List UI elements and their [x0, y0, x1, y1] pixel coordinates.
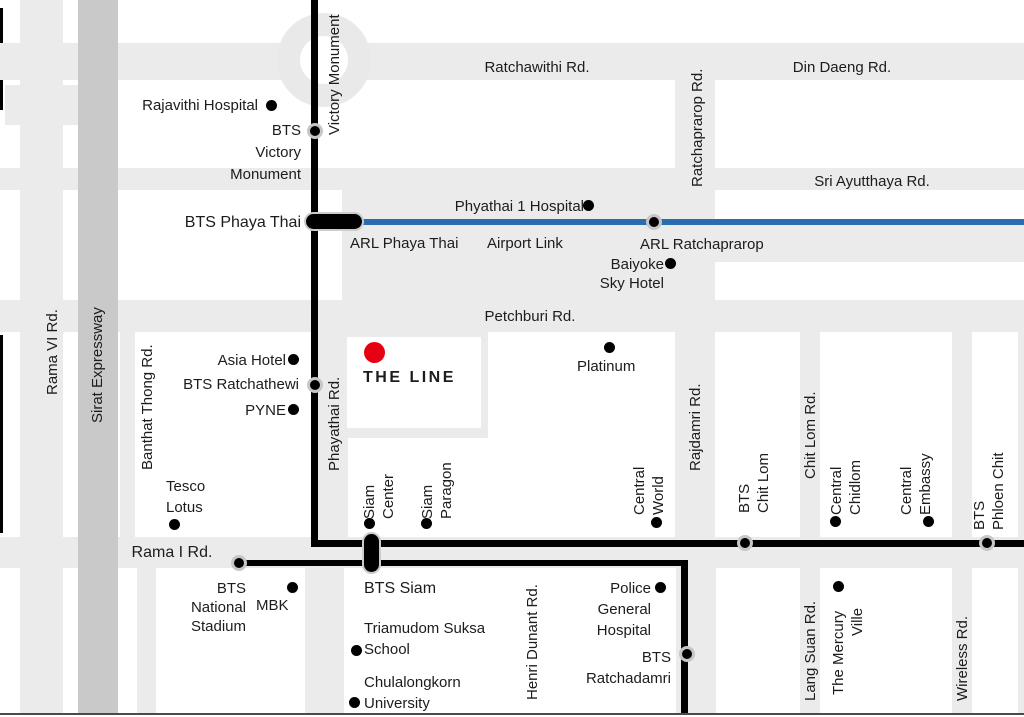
- poi-dot-central-chidlom: [830, 516, 841, 527]
- station-label-arl-phaya-thai: ARL Phaya Thai: [350, 234, 458, 253]
- poi-label-line: Triamudom Suksa: [364, 618, 485, 639]
- station-label-line: BTS: [191, 579, 246, 598]
- poi-label-rajavithi-hospital: Rajavithi Hospital: [142, 96, 258, 115]
- poi-label-police-general-hospital: Police General Hospital: [597, 578, 651, 641]
- poi-label-siam-paragon: Siam: [419, 487, 437, 519]
- poi-dot-police-general-hospital: [655, 582, 666, 593]
- poi-label-pyne: PYNE: [245, 401, 286, 420]
- road-band-right-edge: [1018, 300, 1024, 713]
- road-label-phayathai: Phayathai Rd.: [326, 371, 344, 471]
- road-band-banthat-south: [137, 568, 156, 713]
- poi-dot-mbk: [287, 582, 298, 593]
- road-label-rama6: Rama VI Rd.: [44, 305, 62, 395]
- poi-label-line: Sky Hotel: [600, 274, 664, 293]
- road-label-petchburi: Petchburi Rd.: [485, 307, 576, 326]
- station-pill-bts-phaya-thai: [304, 212, 364, 231]
- station-label-line: Ratchadamri: [586, 668, 671, 689]
- poi-label-line: School: [364, 639, 485, 660]
- poi-label-line: Baiyoke: [600, 255, 664, 274]
- poi-dot-platinum: [604, 342, 615, 353]
- station-label-bts-ratchadamri: BTS Ratchadamri: [586, 647, 671, 689]
- road-label-ratchaprarop: Ratchaprarop Rd.: [689, 57, 707, 187]
- poi-label-line: Lotus: [166, 497, 205, 518]
- station-marker-chit-lom: [737, 535, 753, 551]
- poi-label-mercury-ville: Ville: [849, 602, 867, 636]
- poi-dot-baiyoke-sky-hotel: [665, 258, 676, 269]
- road-label-sri-ayutthaya: Sri Ayutthaya Rd.: [814, 172, 930, 191]
- station-label-victory-monument: BTS Victory Monument: [230, 120, 301, 186]
- road-label-banthat-thong: Banthat Thong Rd.: [139, 330, 157, 470]
- station-marker-victory-monument: [307, 123, 323, 139]
- poi-label-mbk: MBK: [256, 596, 289, 615]
- bts-silom-line-vertical: [681, 560, 688, 714]
- road-label-victory-monument: Victory Monument: [326, 2, 344, 135]
- poi-label-central-embassy: Central: [898, 455, 916, 515]
- poi-dot-pyne: [288, 404, 299, 415]
- station-label-bts-phloen-chit: BTS: [971, 502, 989, 530]
- station-label-line: National: [191, 598, 246, 617]
- bts-sukhumvit-line-horizontal: [311, 540, 1024, 547]
- project-marker-the-line: [364, 342, 385, 363]
- station-marker-ratchathewi: [307, 377, 323, 393]
- bts-sukhumvit-line-vertical: [311, 0, 318, 547]
- poi-label-central-chidlom: Chidlom: [847, 457, 865, 515]
- poi-label-line: General: [597, 599, 651, 620]
- poi-label-line: Tesco: [166, 476, 205, 497]
- poi-label-line: Hospital: [597, 620, 651, 641]
- left-edge-road-line: [0, 8, 3, 43]
- poi-label-platinum: Platinum: [577, 357, 635, 376]
- station-label-bts-phaya-thai: BTS Phaya Thai: [185, 213, 301, 232]
- poi-label-central-world: Central: [631, 453, 649, 515]
- poi-label-baiyoke-sky-hotel: Baiyoke Sky Hotel: [600, 255, 664, 293]
- poi-dot-rajavithi-hospital: [266, 100, 277, 111]
- station-label-bts-national-stadium: BTS National Stadium: [191, 579, 246, 636]
- poi-dot-phyathai-1-hospital: [583, 200, 594, 211]
- station-label-line: Stadium: [191, 617, 246, 636]
- poi-label-central-world: World: [650, 467, 668, 515]
- poi-label-central-chidlom: Central: [828, 455, 846, 515]
- transit-location-map: Ratchawithi Rd. Din Daeng Rd. Sri Ayutth…: [0, 0, 1024, 717]
- poi-label-line: Police: [597, 578, 651, 599]
- poi-label-asia-hotel: Asia Hotel: [218, 351, 286, 370]
- poi-dot-siam-center: [364, 518, 375, 529]
- poi-label-line: University: [364, 693, 461, 714]
- bts-silom-line-horizontal: [238, 560, 688, 566]
- station-label-line: Monument: [230, 164, 301, 186]
- road-label-rama1: Rama I Rd.: [132, 543, 213, 562]
- road-label-rajdamri: Rajdamri Rd.: [687, 375, 705, 471]
- project-label-the-line: THE LINE: [363, 369, 456, 387]
- poi-label-triamudom-suksa-school: Triamudom Suksa School: [364, 618, 485, 660]
- poi-dot-central-world: [651, 517, 662, 528]
- road-label-langsuan: Lang Suan Rd.: [802, 585, 820, 701]
- road-label-wireless: Wireless Rd.: [954, 605, 972, 701]
- poi-label-mercury-ville: The Mercury: [830, 593, 848, 695]
- poi-dot-central-embassy: [923, 516, 934, 527]
- road-label-henri-dunant: Henri Dunant Rd.: [524, 572, 542, 700]
- arl-airport-link-line: [350, 219, 1024, 225]
- station-marker-arl-ratchaprarop: [646, 214, 662, 230]
- station-label-line: BTS: [230, 120, 301, 142]
- road-label-din-daeng: Din Daeng Rd.: [793, 58, 891, 77]
- station-label-bts-ratchathewi: BTS Ratchathewi: [183, 375, 299, 394]
- left-edge-road-line: [0, 335, 3, 533]
- road-band-banthat-north: [120, 300, 135, 537]
- road-label-chitlom: Chit Lom Rd.: [802, 375, 820, 479]
- station-label-arl-ratchaprarop: ARL Ratchaprarop: [640, 235, 764, 254]
- station-label-line: Victory: [230, 142, 301, 164]
- poi-dot-tesco-lotus: [169, 519, 180, 530]
- poi-dot-asia-hotel: [288, 354, 299, 365]
- label-airport-link: Airport Link: [487, 234, 563, 253]
- station-marker-phloen-chit: [979, 535, 995, 551]
- bottom-road-line: [0, 713, 1024, 715]
- station-label-bts-siam: BTS Siam: [364, 579, 436, 598]
- road-band-phayathai-south: [305, 568, 344, 713]
- station-label-line: BTS: [586, 647, 671, 668]
- poi-label-chulalongkorn-university: Chulalongkorn University: [364, 672, 461, 714]
- station-label-bts-phloen-chit: Phloen Chit: [990, 453, 1008, 530]
- station-marker-ratchadamri: [679, 646, 695, 662]
- poi-label-siam-center: Center: [380, 473, 398, 519]
- poi-dot-triamudom-suksa-school: [351, 645, 362, 656]
- station-label-bts-chit-lom: Chit Lom: [755, 452, 773, 513]
- poi-dot-mercury-ville: [833, 581, 844, 592]
- road-label-sirat-expressway: Sirat Expressway: [89, 298, 107, 423]
- poi-label-line: Chulalongkorn: [364, 672, 461, 693]
- poi-dot-chulalongkorn-university: [349, 697, 360, 708]
- poi-label-phyathai-1-hospital: Phyathai 1 Hospital: [455, 197, 584, 216]
- poi-label-tesco-lotus: Tesco Lotus: [166, 476, 205, 518]
- poi-label-siam-paragon: Paragon: [438, 460, 456, 519]
- station-label-bts-chit-lom: BTS: [736, 485, 754, 513]
- poi-label-central-embassy: Embassy: [917, 455, 935, 515]
- poi-label-siam-center: Siam: [361, 487, 379, 519]
- road-label-ratchawithi: Ratchawithi Rd.: [484, 58, 589, 77]
- left-edge-road-line: [0, 80, 3, 110]
- station-pill-bts-siam: [362, 532, 381, 574]
- poi-dot-siam-paragon: [421, 518, 432, 529]
- station-marker-national-stadium: [231, 555, 247, 571]
